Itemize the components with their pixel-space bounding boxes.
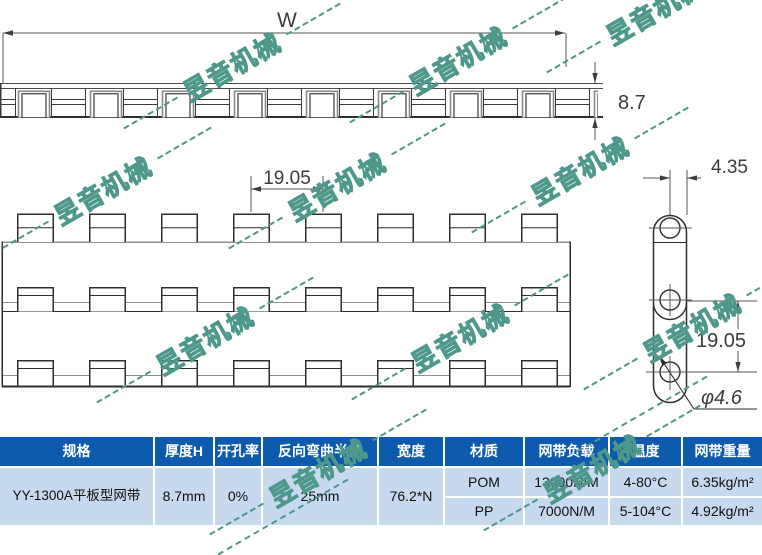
spec-sheet-page: { "watermark": { "text": "昱音机械", "color"… bbox=[0, 0, 762, 525]
belt-plan-view: 19.05 bbox=[2, 168, 570, 387]
dim-width-W: W bbox=[277, 9, 297, 32]
cell-load-pom: 13000N/M bbox=[525, 468, 608, 496]
col-header-load: 网带负载 bbox=[525, 437, 608, 466]
cell-load-pp: 7000N/M bbox=[525, 498, 608, 525]
cell-bend-radius: 25mm bbox=[263, 468, 377, 525]
dim-pitch-19-05: 19.05 bbox=[263, 168, 311, 189]
cell-weight-pom: 6.35kg/m² bbox=[683, 468, 762, 496]
col-header-spec: 规格 bbox=[0, 437, 153, 466]
cell-temperature-pom: 4-80°C bbox=[610, 468, 681, 496]
cell-spec: YY-1300A平板型网带 bbox=[0, 468, 153, 525]
cell-material-pp: PP bbox=[445, 498, 523, 525]
col-header-temperature: 温度 bbox=[610, 437, 681, 466]
engineering-drawing: W 8.7 19.05 bbox=[0, 0, 762, 437]
cell-width: 76.2*N bbox=[379, 468, 443, 525]
col-header-material: 材质 bbox=[445, 437, 523, 466]
spec-table: 规格 厚度H 开孔率 反向弯曲半径 宽度 材质 网带负载 温度 网带重量 YY-… bbox=[0, 437, 762, 525]
dim-thickness-8-7: 8.7 bbox=[618, 92, 646, 114]
cell-temperature-pp: 5-104°C bbox=[610, 498, 681, 525]
link-side-view: 4.35 19.05 φ4.6 bbox=[643, 157, 757, 409]
cell-open-ratio: 0% bbox=[215, 468, 261, 525]
cell-material-pom: POM bbox=[445, 468, 523, 496]
col-header-bend-radius: 反向弯曲半径 bbox=[263, 437, 377, 466]
col-header-width: 宽度 bbox=[379, 437, 443, 466]
dim-link-pitch-19-05: 19.05 bbox=[696, 330, 746, 352]
col-header-open-ratio: 开孔率 bbox=[215, 437, 261, 466]
col-header-weight: 网带重量 bbox=[683, 437, 762, 466]
dim-hole-diameter: φ4.6 bbox=[701, 387, 743, 409]
dim-edge-4-35: 4.35 bbox=[711, 157, 748, 178]
belt-side-view: W 8.7 bbox=[0, 9, 646, 140]
cell-weight-pp: 4.92kg/m² bbox=[683, 498, 762, 525]
col-header-thickness: 厚度H bbox=[155, 437, 213, 466]
cell-thickness: 8.7mm bbox=[155, 468, 213, 525]
